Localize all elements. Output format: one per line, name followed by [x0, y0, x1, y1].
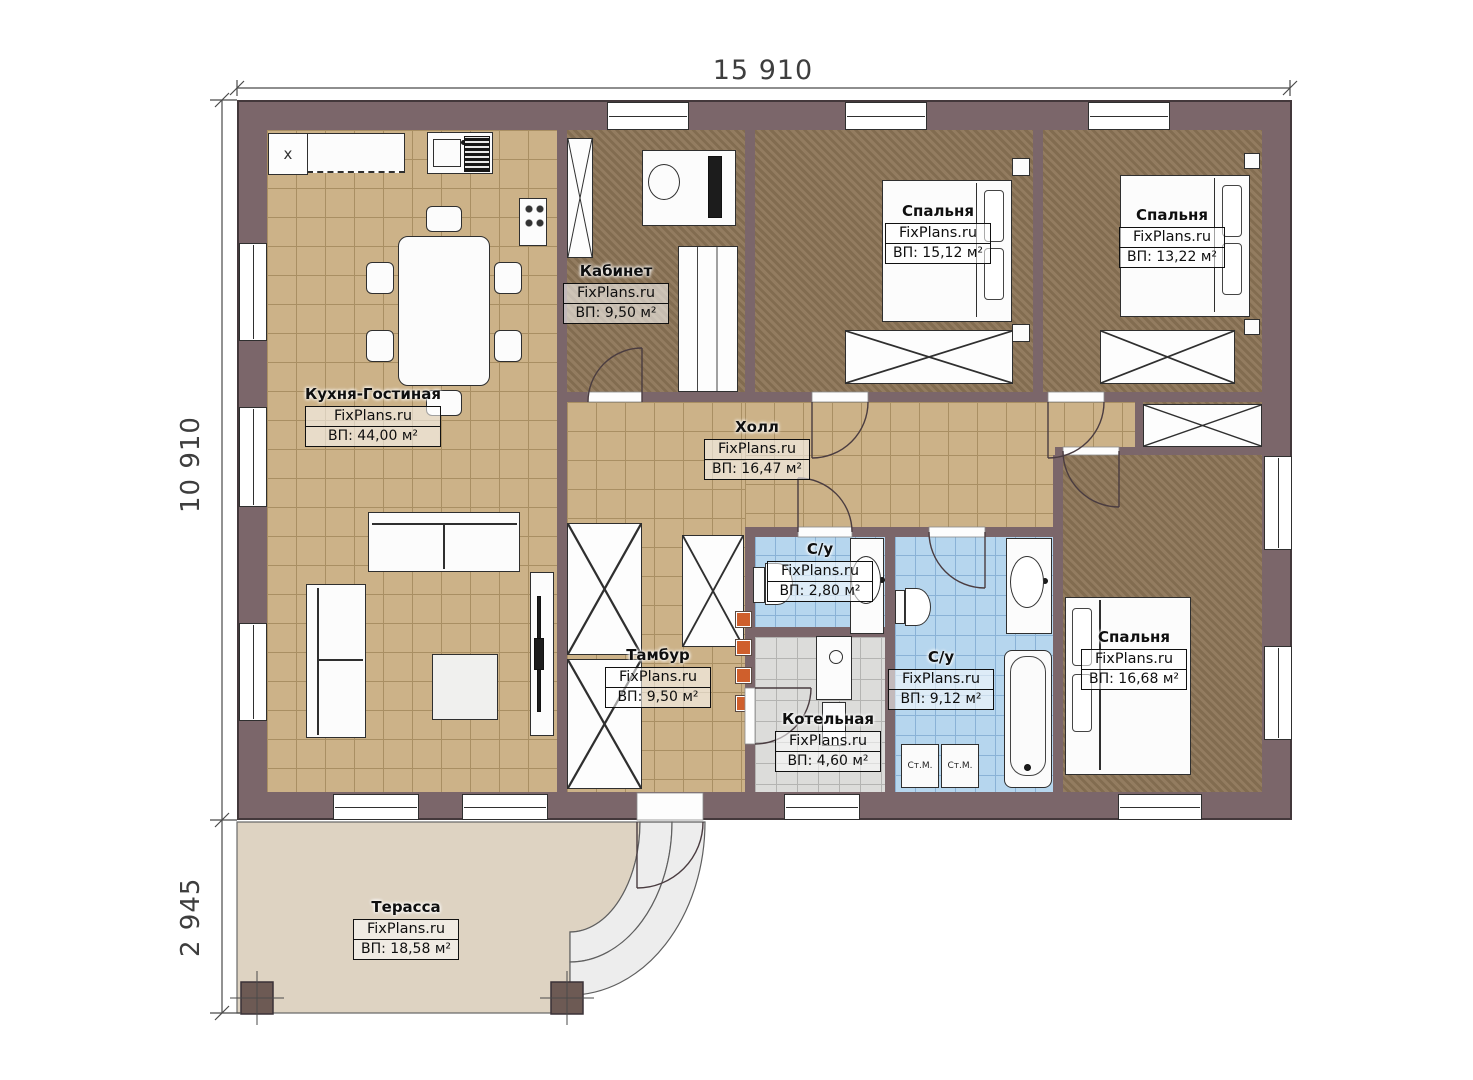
terrace-column	[241, 982, 273, 1014]
room-info-box: FixPlans.ru ВП: 9,50 м²	[605, 667, 711, 708]
brand-watermark: FixPlans.ru	[886, 224, 990, 244]
window	[1264, 646, 1292, 740]
washing-machine: Ст.М.	[901, 744, 939, 788]
kitchen-counter	[307, 133, 405, 173]
dim-ticks	[215, 1006, 229, 1020]
room-label-hall: Холл FixPlans.ru ВП: 16,47 м²	[704, 418, 810, 480]
x-cross-icon	[683, 536, 743, 646]
brand-watermark: FixPlans.ru	[564, 284, 668, 304]
room-label-terrace: Терасса FixPlans.ru ВП: 18,58 м²	[353, 898, 459, 960]
window	[1118, 794, 1202, 820]
boiler-dial-icon	[829, 650, 843, 664]
room-name: Спальня	[1119, 206, 1225, 224]
sofa	[306, 584, 366, 738]
drain-icon	[1024, 764, 1031, 771]
sofa-split	[443, 523, 445, 569]
room-area: ВП: 13,22 м²	[1120, 248, 1224, 267]
nightstand	[1244, 319, 1260, 335]
wall	[1053, 455, 1063, 792]
brand-watermark: FixPlans.ru	[889, 670, 993, 690]
window	[1088, 102, 1170, 130]
wardrobe	[682, 535, 744, 647]
ladder-rung-icon	[736, 696, 751, 711]
room-area: ВП: 2,80 м²	[768, 582, 872, 601]
nightstand	[1244, 153, 1260, 169]
room-name: Холл	[704, 418, 810, 436]
brand-watermark: FixPlans.ru	[1120, 228, 1224, 248]
floor-plan: 15 910 10 910 2 945 x	[0, 0, 1473, 1080]
stove-icon	[464, 136, 490, 172]
washer-label: Ст.М.	[947, 761, 972, 771]
brand-watermark: FixPlans.ru	[354, 920, 458, 940]
brand-watermark: FixPlans.ru	[768, 562, 872, 582]
room-info-box: FixPlans.ru ВП: 4,60 м²	[775, 731, 881, 772]
room-area: ВП: 16,47 м²	[705, 460, 809, 479]
room-area: ВП: 9,12 м²	[889, 690, 993, 709]
room-info-box: FixPlans.ru ВП: 9,50 м²	[563, 283, 669, 324]
room-area: ВП: 9,50 м²	[564, 304, 668, 323]
room-name: Тамбур	[605, 646, 711, 664]
brand-watermark: FixPlans.ru	[1082, 650, 1186, 670]
column-cross-marks	[230, 971, 594, 1025]
computer-icon	[708, 156, 722, 218]
room-info-box: FixPlans.ru ВП: 15,12 м²	[885, 223, 991, 264]
dimension-height: 10 910	[176, 400, 206, 530]
closet	[1100, 330, 1235, 384]
window	[333, 794, 419, 820]
room-name: С/у	[888, 648, 994, 666]
room-area: ВП: 15,12 м²	[886, 244, 990, 263]
shaft	[567, 138, 593, 258]
room-info-box: FixPlans.ru ВП: 2,80 м²	[767, 561, 873, 602]
dim-ticks	[215, 93, 229, 827]
wall	[868, 392, 1048, 402]
window	[845, 102, 927, 130]
sofa-split	[317, 659, 363, 661]
wall	[567, 392, 588, 402]
window	[607, 102, 689, 130]
terrace-step	[570, 822, 672, 962]
room-info-box: FixPlans.ru ВП: 16,68 м²	[1081, 649, 1187, 690]
room-info-box: FixPlans.ru ВП: 9,12 м²	[888, 669, 994, 710]
nightstand	[1012, 158, 1030, 176]
terrace-step	[570, 822, 705, 995]
wall	[557, 523, 567, 792]
window	[239, 407, 267, 507]
wardrobe	[567, 523, 642, 655]
washer-label: Ст.М.	[907, 761, 932, 771]
x-cross-icon	[568, 524, 641, 654]
x-cross-icon	[568, 139, 592, 257]
washing-machine: Ст.М.	[941, 744, 979, 788]
wall	[1135, 402, 1143, 447]
brand-watermark: FixPlans.ru	[705, 440, 809, 460]
entrance-door-swing	[637, 822, 703, 888]
wall	[745, 744, 755, 792]
room-name: Кухня-Гостиная	[305, 385, 441, 403]
closet	[845, 330, 1013, 384]
bathtub-inner	[1010, 656, 1046, 776]
wall	[745, 128, 755, 392]
x-cross-icon	[1144, 405, 1261, 446]
room-name: Кабинет	[563, 262, 669, 280]
tv-base-icon	[534, 638, 544, 670]
room-name: Спальня	[1081, 628, 1187, 646]
room-area: ВП: 16,68 м²	[1082, 670, 1186, 689]
ladder-rung-icon	[736, 640, 751, 655]
x-cross-icon	[1101, 331, 1234, 383]
nightstand	[1012, 324, 1030, 342]
window	[239, 243, 267, 341]
window	[1264, 456, 1292, 550]
room-name: Котельная	[775, 710, 881, 728]
toilet-tank	[895, 590, 905, 624]
room-label-bathroom-big: С/у FixPlans.ru ВП: 9,12 м²	[888, 648, 994, 710]
dimension-width: 15 910	[663, 55, 863, 86]
room-label-tambur: Тамбур FixPlans.ru ВП: 9,50 м²	[605, 646, 711, 708]
room-name: С/у	[767, 540, 873, 558]
room-label-bedroom2: Спальня FixPlans.ru ВП: 13,22 м²	[1119, 206, 1225, 268]
dim-line-terrace	[210, 820, 241, 1013]
bookcase	[678, 246, 738, 392]
dim-line-left	[210, 100, 237, 820]
dining-table	[398, 236, 490, 386]
dimension-terrace: 2 945	[176, 860, 206, 975]
sink-icon	[1010, 556, 1044, 608]
room-info-box: FixPlans.ru ВП: 16,47 м²	[704, 439, 810, 480]
terrace-group	[230, 822, 705, 1025]
sofa-back	[372, 523, 517, 525]
room-area: ВП: 18,58 м²	[354, 940, 458, 959]
chair	[494, 330, 522, 362]
room-area: ВП: 9,50 м²	[606, 688, 710, 707]
room-area: ВП: 44,00 м²	[306, 427, 440, 446]
ladder-rung-icon	[736, 668, 751, 683]
toilet-tank	[753, 567, 765, 603]
room-info-box: FixPlans.ru ВП: 44,00 м²	[305, 406, 441, 447]
corner-mark: x	[284, 145, 293, 163]
x-cross-icon	[846, 331, 1012, 383]
wall	[1033, 128, 1043, 392]
terrace-column	[551, 982, 583, 1014]
room-label-bedroom1: Спальня FixPlans.ru ВП: 15,12 м²	[885, 202, 991, 264]
wall	[1055, 447, 1063, 455]
sink-bowl-icon	[433, 139, 461, 167]
office-chair	[648, 164, 680, 200]
ladder-rung-icon	[736, 612, 751, 627]
room-name: Спальня	[885, 202, 991, 220]
room-label-kitchen-living: Кухня-Гостиная FixPlans.ru ВП: 44,00 м²	[305, 385, 441, 447]
cooktop-icon	[519, 198, 547, 246]
chair	[366, 330, 394, 362]
room-label-kabinet: Кабинет FixPlans.ru ВП: 9,50 м²	[563, 262, 669, 324]
room-label-bathroom-small: С/у FixPlans.ru ВП: 2,80 м²	[767, 540, 873, 602]
brand-watermark: FixPlans.ru	[306, 407, 440, 427]
room-area: ВП: 4,60 м²	[776, 752, 880, 771]
window	[239, 623, 267, 721]
wall	[745, 527, 798, 537]
room-label-kotelnaya: Котельная FixPlans.ru ВП: 4,60 м²	[775, 710, 881, 772]
room-name: Терасса	[353, 898, 459, 916]
chair	[494, 262, 522, 294]
coffee-table	[432, 654, 498, 720]
chair	[426, 206, 462, 232]
room-info-box: FixPlans.ru ВП: 13,22 м²	[1119, 227, 1225, 268]
sofa	[368, 512, 520, 572]
room-info-box: FixPlans.ru ВП: 18,58 м²	[353, 919, 459, 960]
boiler	[816, 636, 852, 700]
window	[462, 794, 548, 820]
wall	[985, 527, 1055, 537]
wall	[1104, 392, 1262, 402]
room-label-bedroom3: Спальня FixPlans.ru ВП: 16,68 м²	[1081, 628, 1187, 690]
closet	[1143, 404, 1262, 447]
window	[784, 794, 860, 820]
wall	[1119, 447, 1262, 455]
chair	[366, 262, 394, 294]
sofa-back	[317, 588, 319, 735]
marked-cabinet: x	[268, 133, 308, 175]
brand-watermark: FixPlans.ru	[606, 668, 710, 688]
brand-watermark: FixPlans.ru	[776, 732, 880, 752]
wall	[642, 392, 812, 402]
